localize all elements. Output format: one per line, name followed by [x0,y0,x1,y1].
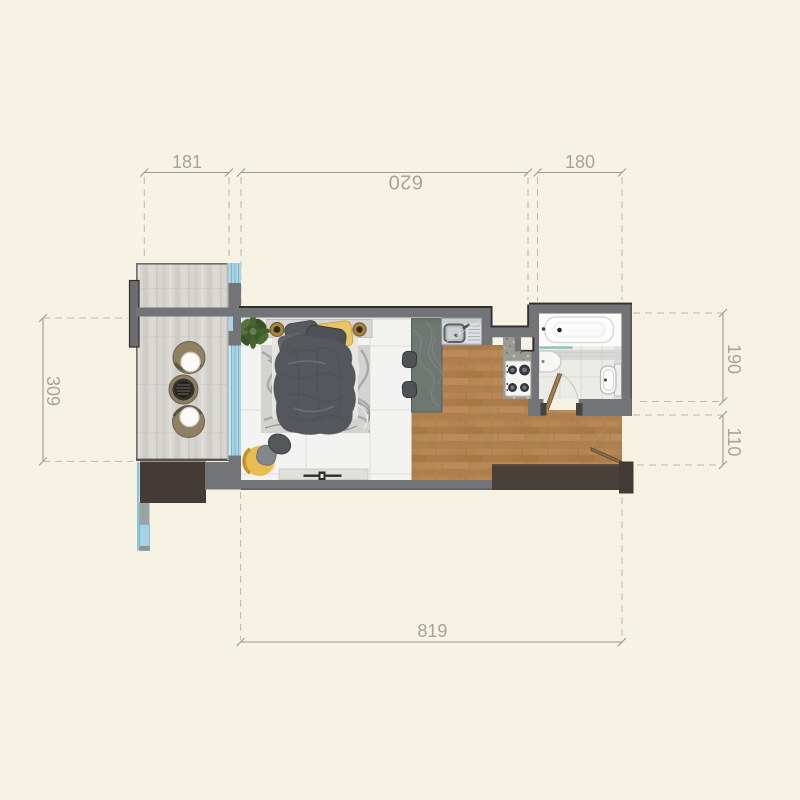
svg-text:181: 181 [172,152,202,172]
svg-text:180: 180 [565,152,595,172]
svg-text:190: 190 [724,344,744,374]
svg-text:110: 110 [724,428,744,457]
svg-text:819: 819 [417,621,447,641]
svg-text:620: 620 [388,171,423,193]
svg-text:309: 309 [43,376,63,406]
